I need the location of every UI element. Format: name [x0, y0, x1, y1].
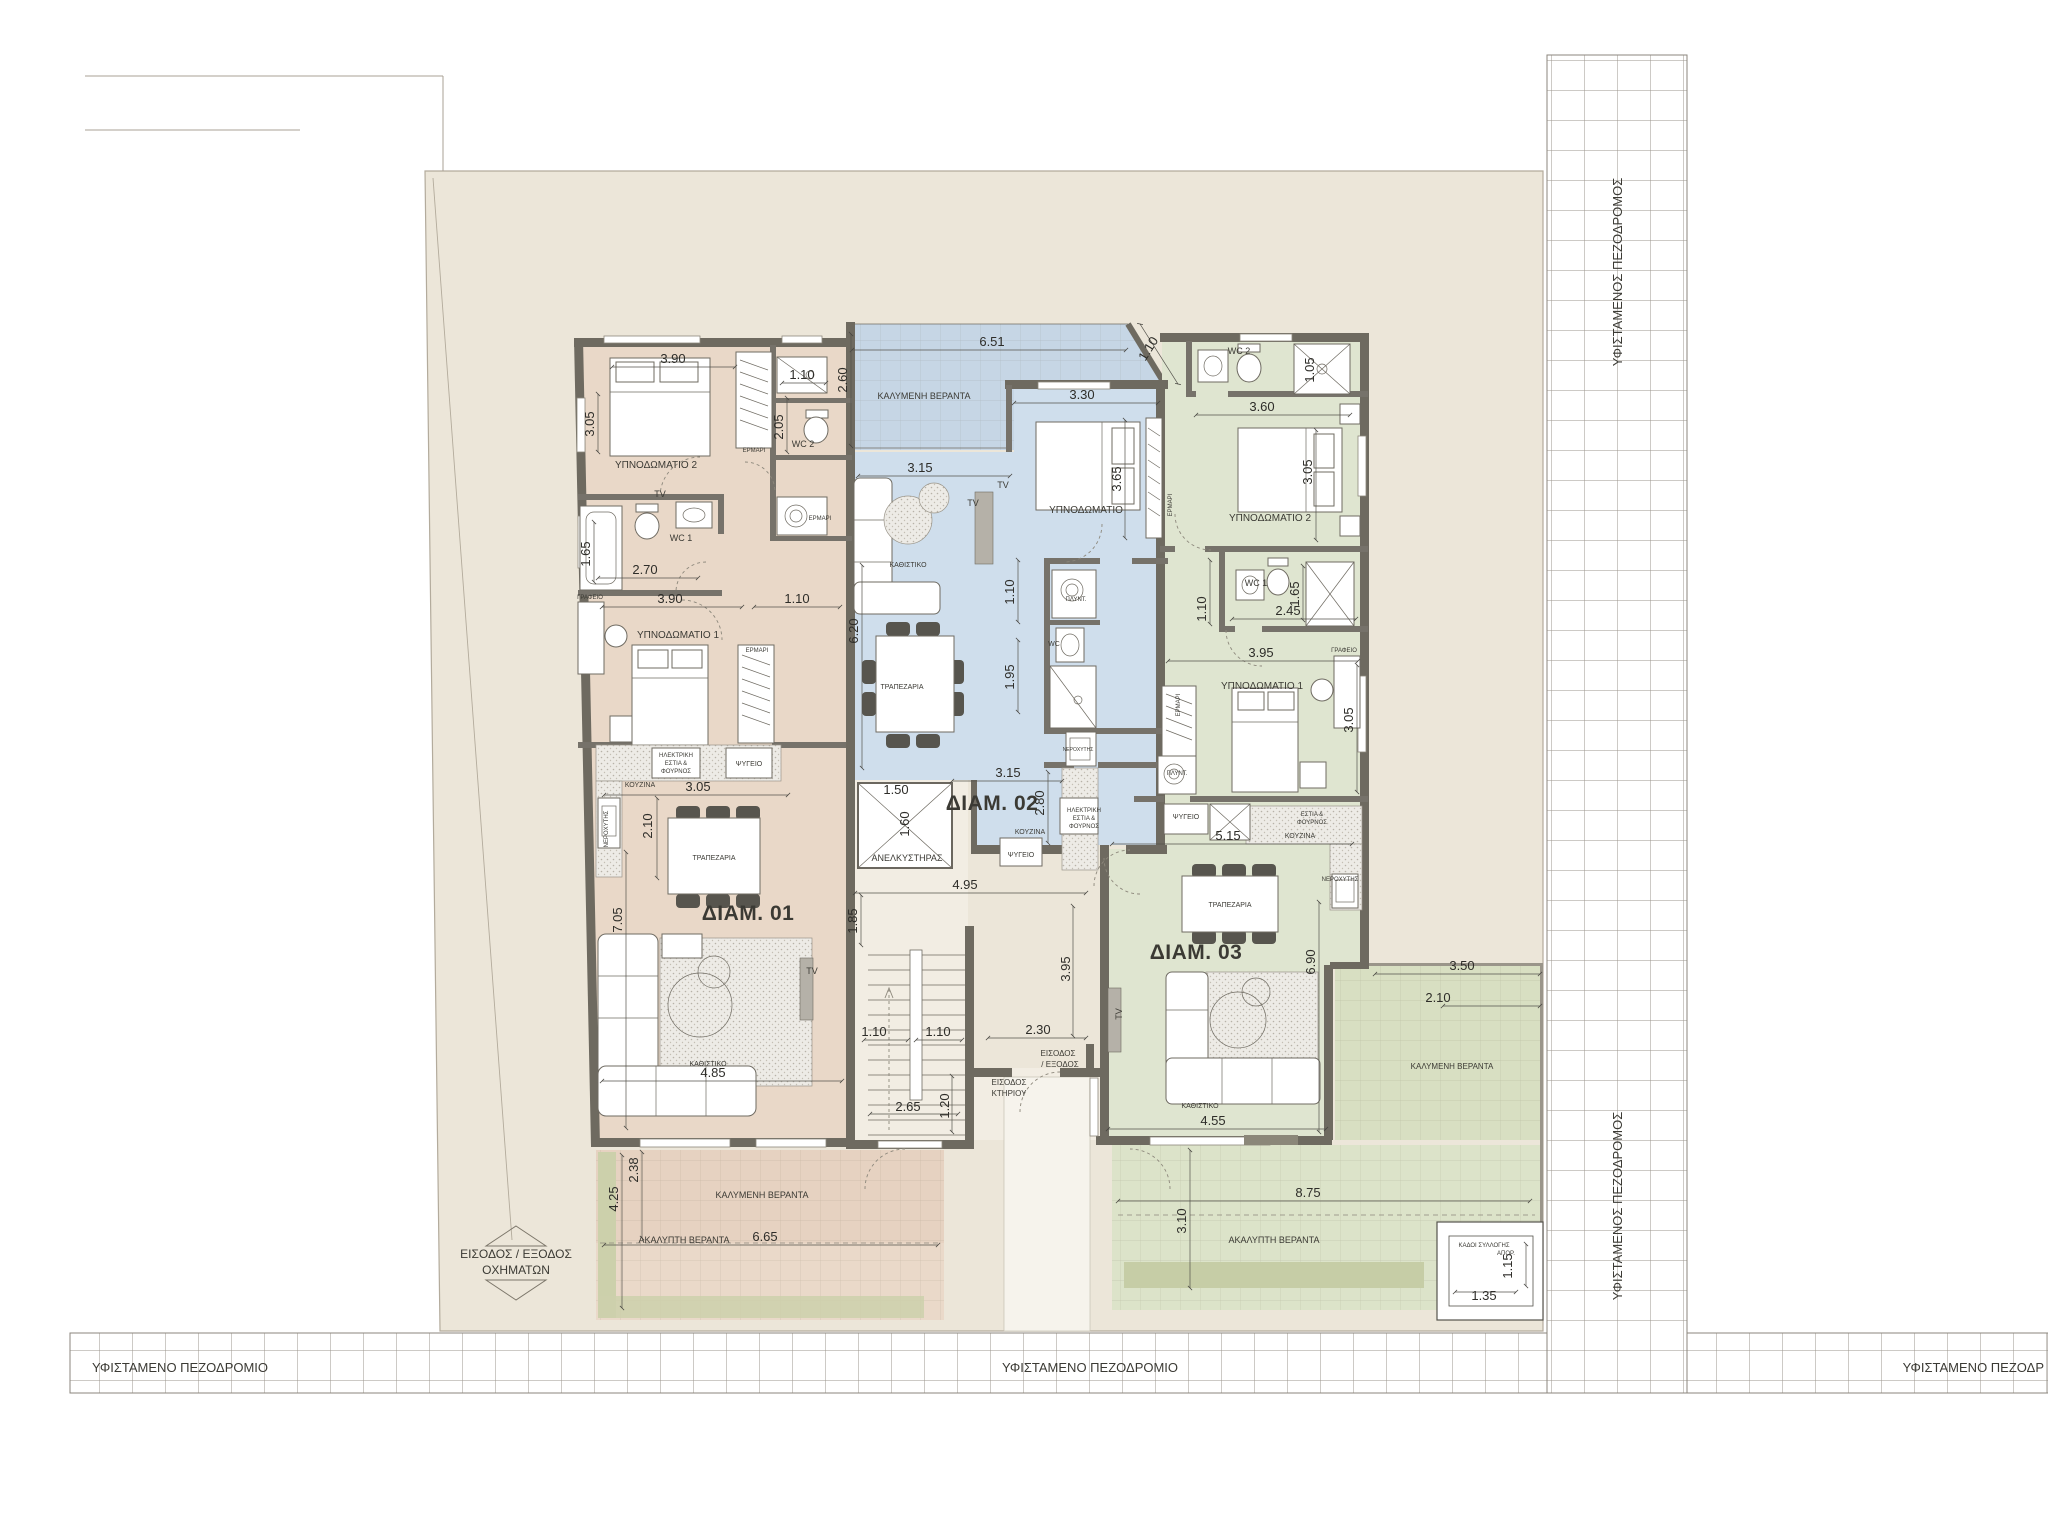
shower-apt03-wc1 [1306, 562, 1354, 626]
dimension-label: 1.65 [1287, 581, 1302, 606]
laundry-closet-apt02 [1052, 570, 1096, 618]
rug-apt03-living [1206, 972, 1318, 1070]
dimension-label: 8.75 [1295, 1185, 1320, 1200]
room-label: ΤΡΑΠΕΖΑΡΙΑ [692, 855, 735, 862]
dimension-label: 1.95 [1002, 664, 1017, 689]
dimension-label: 2.05 [771, 414, 786, 439]
dimension-label: 2.10 [1425, 990, 1450, 1005]
room-label: ΑΚΑΛΥΠΤΗ ΒΕΡΑΝΤΑ [1228, 1235, 1319, 1245]
room-label: ΚΑΛΥΜΕΝΗ ΒΕΡΑΝΤΑ [1411, 1062, 1494, 1071]
room-label: ΕΡΜΑΡΙ [1176, 693, 1182, 716]
dimension-label: 3.95 [1248, 645, 1273, 660]
room-label: TV [997, 480, 1009, 490]
room-label: ΕΣΤΙΑ & [665, 761, 687, 767]
room-label: ΠΛΥΝΤ. [1066, 597, 1087, 603]
dimension-label: 6.20 [846, 618, 861, 643]
room-label: WC 1 [670, 533, 693, 543]
room-label: ΑΚΑΛΥΠΤΗ ΒΕΡΑΝΤΑ [638, 1235, 729, 1245]
room-label: ΔΙΑΜ. 02 [946, 792, 1039, 815]
room-label: ΝΕΡΟΧΥΤΗΣ [1063, 747, 1094, 753]
dimension-label: 3.95 [1058, 956, 1073, 981]
dimension-label: 3.05 [1341, 707, 1356, 732]
room-label: ΕΡΜΑΡΙ [809, 516, 832, 522]
dimension-label: 2.38 [626, 1157, 641, 1182]
room-label: ΥΠΝΟΔΩΜΑΤΙΟ 1 [637, 630, 720, 641]
dimension-label: 3.05 [685, 779, 710, 794]
room-label: ΚΑΛΥΜΕΝΗ ΒΕΡΑΝΤΑ [715, 1190, 808, 1200]
dimension-label: 4.85 [700, 1065, 725, 1080]
room-label: ΑΝΕΛΚΥΣΤΗΡΑΣ [872, 853, 943, 863]
dimension-label: 3.05 [1300, 459, 1315, 484]
sidewalk-label-bottom-right: ΥΦΙΣΤΑΜΕΝΟ ΠΕΖΟΔΡ [1903, 1360, 2044, 1375]
dimension-label: 4.55 [1200, 1113, 1225, 1128]
dimension-label: 2.65 [895, 1099, 920, 1114]
room-label: ΨΥΓΕΙΟ [1173, 814, 1200, 821]
bed-double-apt01-bedroom2 [610, 358, 710, 456]
dimension-label: 1.10 [789, 367, 814, 382]
sidewalk-label-bottom-center: ΥΦΙΣΤΑΜΕΝΟ ΠΕΖΟΔΡΟΜΙΟ [1002, 1360, 1178, 1375]
dimension-label: 1.15 [1500, 1253, 1515, 1278]
dimension-label: 4.95 [952, 877, 977, 892]
sidewalk-label-right-top: ΥΦΙΣΤΑΜΕΝΟΣ ΠΕΖΟΔΡΟΜΟΣ [1610, 178, 1625, 367]
dimension-label: 1.35 [1471, 1288, 1496, 1303]
room-label: WC 2 [792, 439, 815, 449]
room-label: ΨΥΓΕΙΟ [736, 761, 763, 768]
room-label: ΓΡΑΦΕΙΟ [577, 595, 603, 601]
rug-apt01-living [660, 938, 812, 1086]
room-label: WC 1 [1245, 578, 1268, 588]
plant-small-apt02 [919, 483, 949, 513]
dimension-label: 1.50 [883, 782, 908, 797]
shower-apt02-wc [1050, 666, 1096, 728]
dimension-label: 1.65 [578, 541, 593, 566]
room-label: ΕΡΜΑΡΙ [746, 648, 769, 654]
room-label: TV [1114, 1008, 1124, 1020]
planter-bottom-apt01 [598, 1296, 924, 1318]
room-label: ΕΣΤΙΑ & [1301, 812, 1323, 818]
basin-apt02-wc [1056, 628, 1084, 662]
dimension-label: 3.05 [582, 411, 597, 436]
basin-apt01-wc1 [676, 502, 712, 528]
room-label: ΓΡΑΦΕΙΟ [1331, 648, 1357, 654]
toilet-apt03-wc1 [1267, 558, 1289, 595]
room-label: ΔΙΑΜ. 01 [702, 902, 795, 925]
room-label: ΚΑΔΟΙ ΣΥΛΛΟΓΗΣ [1458, 1243, 1509, 1249]
waste-bins-area [1437, 1222, 1543, 1320]
room-label: ΦΟΥΡΝΟΣ [661, 769, 691, 775]
room-label: ΚΟΥΖΙΝΑ [625, 782, 656, 789]
vehicle-entrance-label-2: ΟΧΗΜΑΤΩΝ [482, 1263, 550, 1277]
dimension-label: 1.10 [784, 591, 809, 606]
wardrobe-apt01-bedroom2 [736, 352, 772, 448]
room-label: ΚΤΗΡΙΟΥ [992, 1089, 1028, 1098]
dimension-label: 6.51 [979, 334, 1004, 349]
room-label: ΚΟΥΖΙΝΑ [1015, 829, 1046, 836]
room-label: WC 2 [1228, 346, 1251, 356]
dimension-label: 3.15 [995, 765, 1020, 780]
floor-plan-drawing: ΕΙΣΟΔΟΣ / ΕΞΟΔΟΣ ΟΧΗΜΑΤΩΝ [0, 0, 2048, 1536]
toilet-apt01-wc1 [635, 504, 659, 539]
dimension-label: 2.80 [1032, 790, 1047, 815]
dimension-label: 3.60 [1249, 399, 1274, 414]
dimension-label: 3.30 [1069, 387, 1094, 402]
room-label: ΕΡΜΑΡΙ [743, 448, 766, 454]
room-label: TV [654, 489, 666, 499]
room-label: ΕΣΤΙΑ & [1073, 816, 1095, 822]
dimension-label: 1.60 [897, 811, 912, 836]
room-label: ΥΠΝΟΔΩΜΑΤΙΟ 1 [1221, 681, 1304, 692]
room-label: ΗΛΕΚΤΡΙΚΗ [659, 753, 693, 759]
dimension-label: 6.90 [1303, 949, 1318, 974]
dimension-label: 2.30 [1025, 1022, 1050, 1037]
room-label: ΥΠΝΟΔΩΜΑΤΙΟ 2 [1229, 513, 1312, 524]
dimension-label: 1.10 [925, 1024, 950, 1039]
room-label: ΤΡΑΠΕΖΑΡΙΑ [880, 684, 923, 691]
room-label: WC [1048, 641, 1060, 648]
room-label: ΔΙΑΜ. 03 [1150, 941, 1243, 964]
room-label: ΕΡΜΑΡΙ [1168, 493, 1174, 516]
room-label: / ΕΞΟΔΟΣ [1041, 1060, 1078, 1069]
room-label: ΚΟΥΖΙΝΑ [1285, 833, 1316, 840]
dimension-label: 2.70 [632, 562, 657, 577]
planter-left-apt01 [598, 1152, 616, 1318]
dimension-label: 2.60 [835, 367, 850, 392]
dimension-label: 1.20 [937, 1093, 952, 1118]
dimension-label: 3.65 [1109, 466, 1124, 491]
dimension-label: 4.25 [606, 1186, 621, 1211]
dimension-label: 3.90 [660, 351, 685, 366]
dimension-label: 1.10 [861, 1024, 886, 1039]
bed-double-apt02 [1036, 422, 1140, 510]
room-label: ΦΟΥΡΝΟΣ [1069, 824, 1099, 830]
dimension-label: 1.10 [1194, 596, 1209, 621]
dimension-label: 2.10 [640, 813, 655, 838]
room-label: ΤΡΑΠΕΖΑΡΙΑ [1208, 902, 1251, 909]
wardrobe-apt01-bedroom1 [738, 645, 774, 743]
room-label: TV [806, 966, 818, 976]
room-label: ΨΥΓΕΙΟ [1008, 852, 1035, 859]
room-label: ΚΑΛΥΜΕΝΗ ΒΕΡΑΝΤΑ [877, 391, 970, 401]
dimension-label: 1.10 [1002, 579, 1017, 604]
room-label: TV [967, 498, 979, 508]
room-label: ΠΛΥΝΤ. [1167, 771, 1188, 777]
dimension-label: 6.65 [752, 1229, 777, 1244]
dimension-label: 7.05 [610, 907, 625, 932]
dimension-label: 3.15 [907, 460, 932, 475]
planter-bottom-apt03 [1124, 1262, 1424, 1288]
dimension-label: 1.05 [1302, 357, 1317, 382]
dimension-label: 3.10 [1174, 1208, 1189, 1233]
window-sill-dark [1244, 1135, 1298, 1145]
room-label: ΕΙΣΟΔΟΣ [1041, 1049, 1076, 1058]
dimension-label: 5.15 [1215, 828, 1240, 843]
dimension-label: 3.90 [657, 591, 682, 606]
basin-apt03-wc2 [1198, 350, 1228, 382]
room-label: ΗΛΕΚΤΡΙΚΗ [1067, 808, 1101, 814]
floor-plan-page: ΕΙΣΟΔΟΣ / ΕΞΟΔΟΣ ΟΧΗΜΑΤΩΝ [0, 0, 2048, 1536]
room-label: ΥΠΝΟΔΩΜΑΤΙΟ 2 [615, 460, 698, 471]
entrance-path [1004, 1077, 1090, 1331]
wardrobe-apt02 [1146, 418, 1162, 538]
sidewalk-label-right-bottom: ΥΦΙΣΤΑΜΕΝΟΣ ΠΕΖΟΔΡΟΜΟΣ [1610, 1112, 1625, 1301]
dimension-label: 1.85 [845, 908, 860, 933]
room-label: ΝΕΡΟΧΥΤΗΣ [1322, 877, 1359, 883]
dimension-label: 3.50 [1449, 958, 1474, 973]
vehicle-entrance-label-1: ΕΙΣΟΔΟΣ / ΕΞΟΔΟΣ [460, 1247, 572, 1261]
room-label: ΕΙΣΟΔΟΣ [992, 1078, 1027, 1087]
sidewalk-label-bottom-left: ΥΦΙΣΤΑΜΕΝΟ ΠΕΖΟΔΡΟΜΙΟ [92, 1360, 268, 1375]
room-label: ΥΠΝΟΔΩΜΑΤΙΟ [1049, 505, 1123, 516]
room-label: ΦΟΥΡΝΟΣ [1297, 820, 1327, 826]
room-label: ΚΑΘΙΣΤΙΚΟ [889, 562, 927, 569]
room-label: ΚΑΘΙΣΤΙΚΟ [1181, 1103, 1219, 1110]
room-label: ΝΕΡΟΧΥΤΗΣ [604, 810, 610, 847]
